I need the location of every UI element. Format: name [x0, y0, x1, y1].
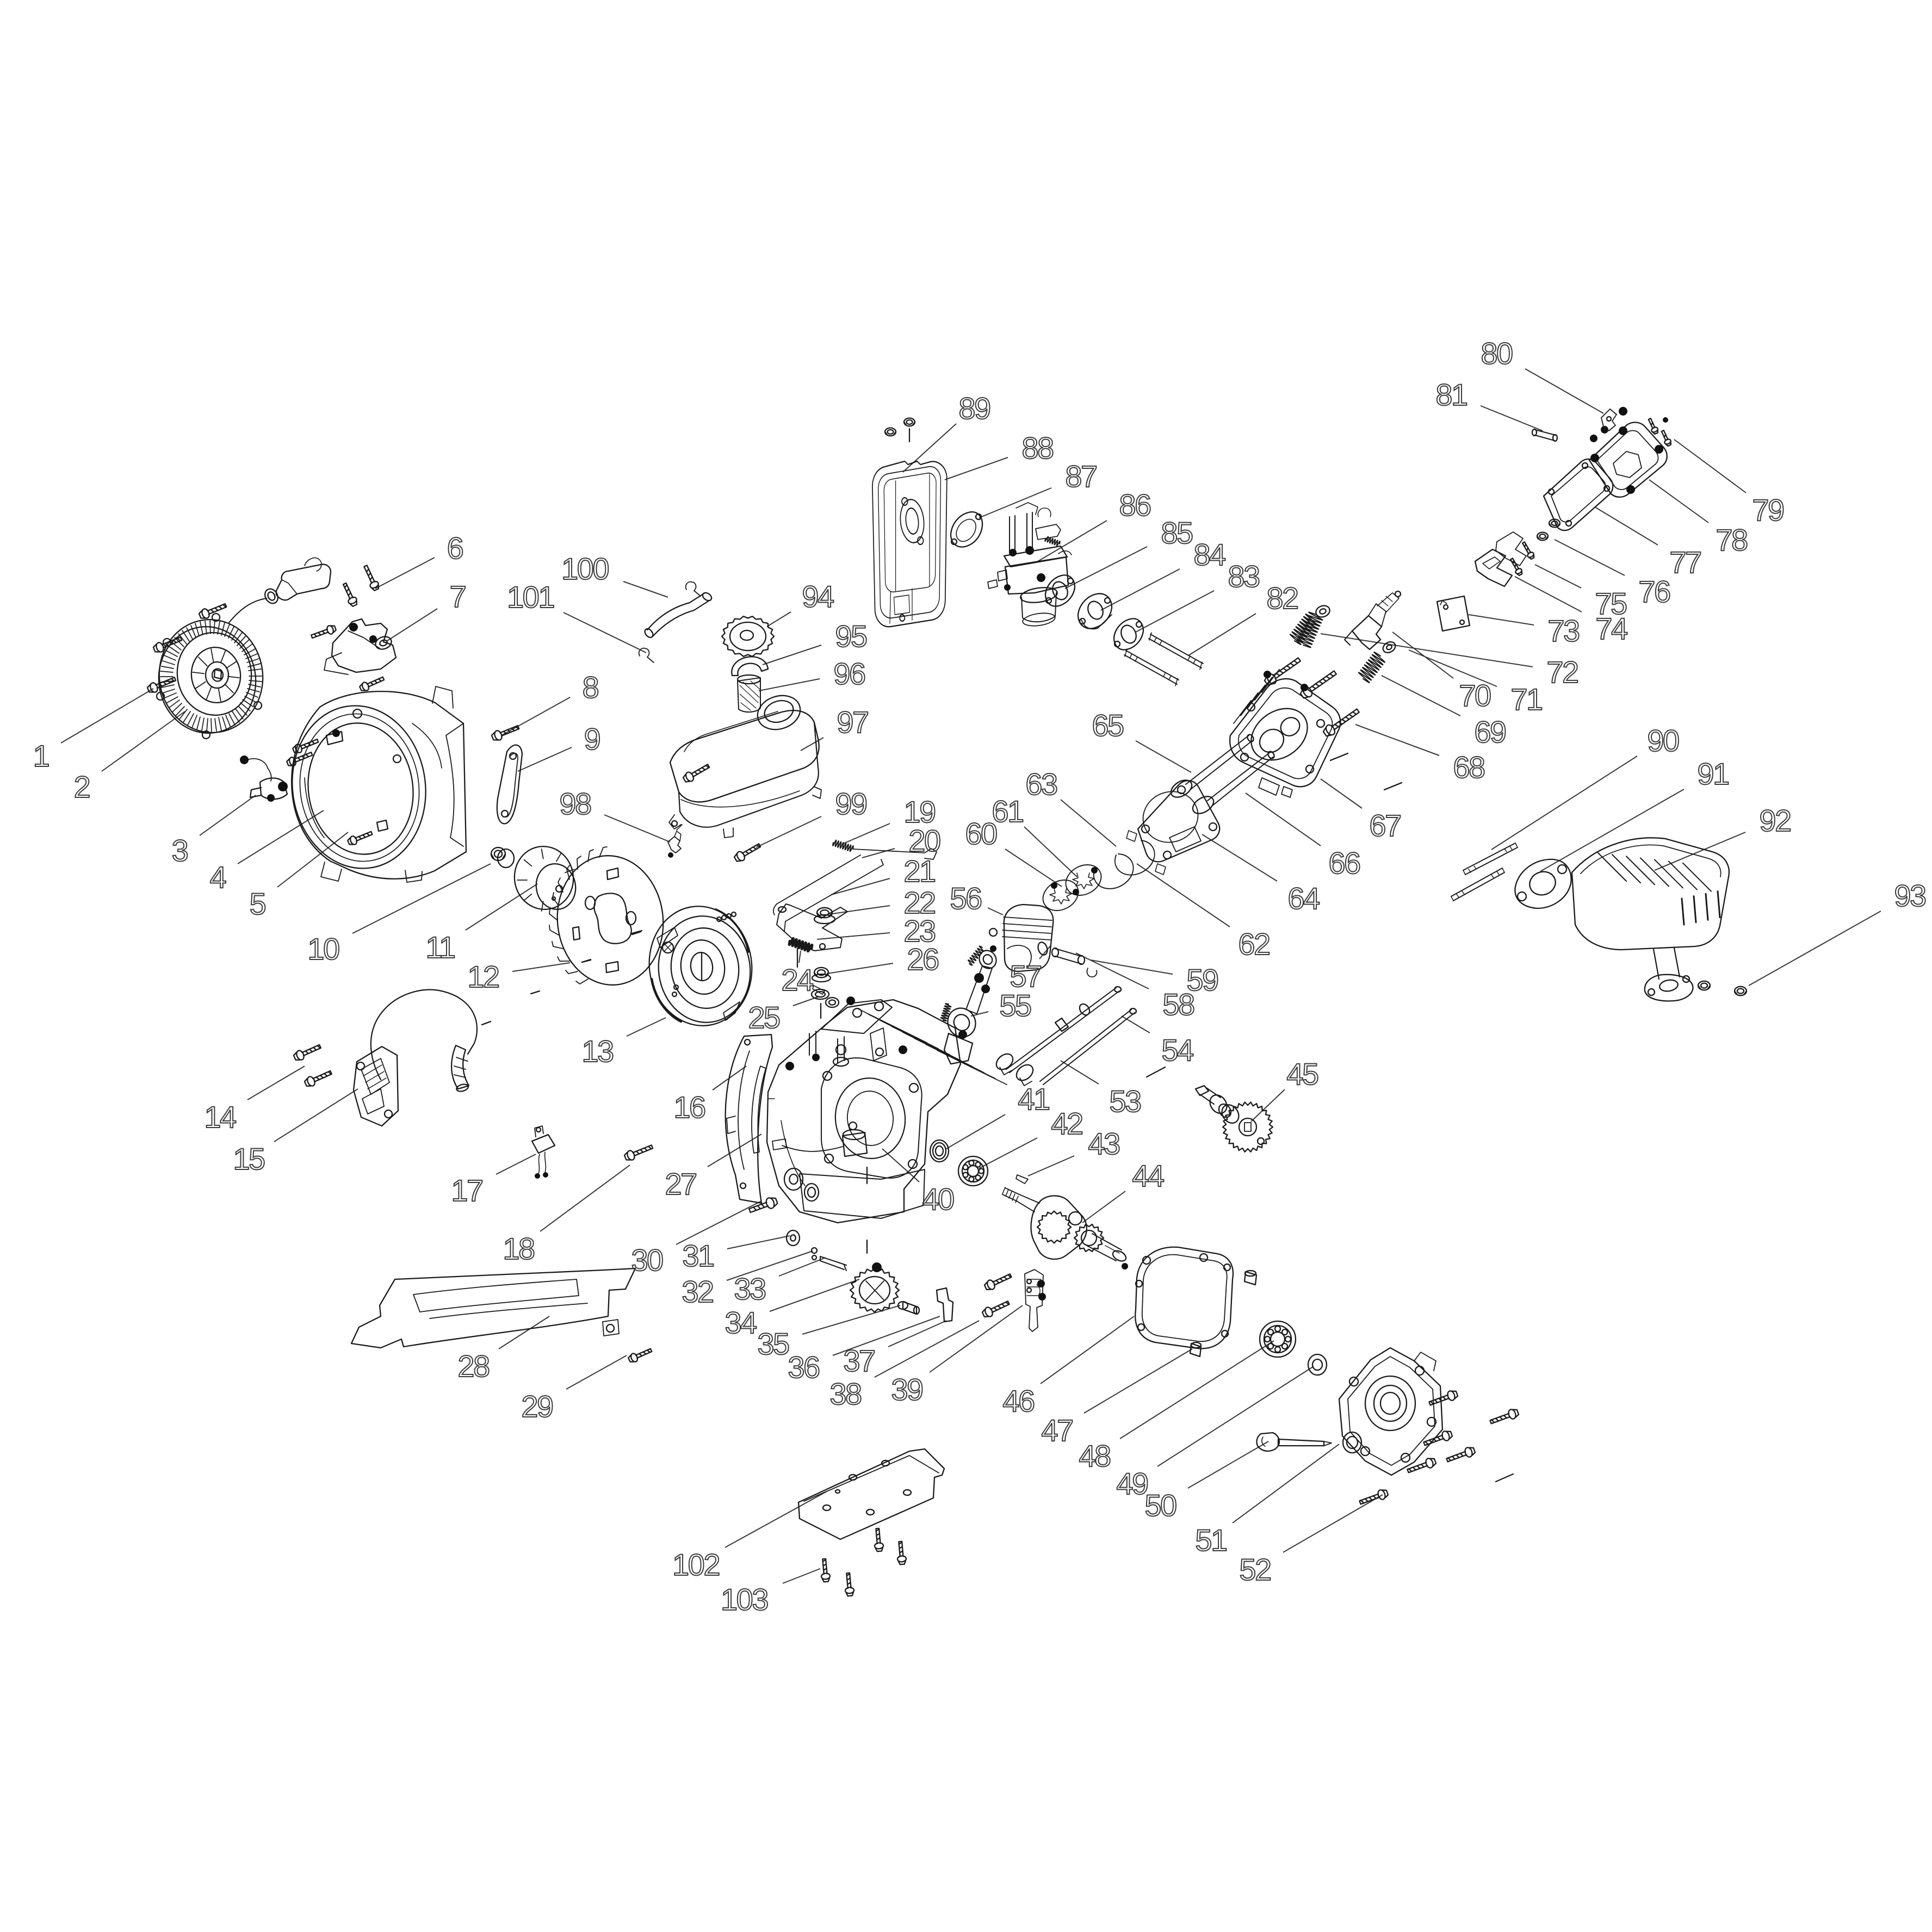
svg-text:55: 55	[999, 988, 1031, 1023]
svg-text:92: 92	[1759, 803, 1791, 838]
svg-text:10: 10	[307, 932, 339, 966]
svg-text:66: 66	[1328, 846, 1360, 880]
svg-text:54: 54	[1161, 1033, 1193, 1067]
svg-text:36: 36	[788, 1350, 819, 1384]
svg-text:93: 93	[1894, 878, 1925, 913]
svg-text:20: 20	[908, 823, 940, 858]
svg-text:57: 57	[1010, 959, 1041, 993]
svg-text:97: 97	[837, 705, 868, 739]
svg-text:29: 29	[521, 1389, 553, 1423]
svg-text:26: 26	[907, 942, 938, 976]
svg-text:17: 17	[451, 1173, 482, 1207]
svg-text:49: 49	[1116, 1466, 1148, 1501]
svg-text:79: 79	[1752, 493, 1784, 527]
svg-text:13: 13	[581, 1034, 613, 1068]
svg-text:14: 14	[204, 1100, 236, 1134]
svg-text:101: 101	[507, 580, 554, 614]
svg-text:95: 95	[835, 619, 866, 653]
svg-text:2: 2	[74, 770, 90, 804]
svg-text:75: 75	[1595, 586, 1626, 621]
svg-text:63: 63	[1025, 767, 1057, 801]
svg-text:85: 85	[1161, 516, 1192, 550]
svg-text:44: 44	[1132, 1159, 1164, 1193]
svg-text:77: 77	[1669, 545, 1701, 579]
svg-text:43: 43	[1088, 1126, 1119, 1161]
svg-text:39: 39	[891, 1372, 922, 1407]
svg-text:6: 6	[447, 531, 463, 565]
svg-text:5: 5	[250, 887, 265, 921]
svg-text:38: 38	[829, 1377, 861, 1411]
svg-text:48: 48	[1079, 1439, 1110, 1473]
svg-text:28: 28	[457, 1349, 489, 1383]
svg-text:25: 25	[748, 1000, 779, 1035]
svg-text:94: 94	[802, 579, 834, 614]
svg-text:35: 35	[757, 1327, 789, 1361]
svg-text:86: 86	[1119, 488, 1150, 522]
svg-text:7: 7	[450, 579, 466, 614]
svg-text:56: 56	[950, 881, 981, 915]
svg-text:8: 8	[583, 670, 598, 704]
svg-text:51: 51	[1195, 1523, 1227, 1557]
svg-text:32: 32	[682, 1274, 713, 1309]
svg-text:99: 99	[835, 787, 866, 821]
svg-text:102: 102	[672, 1547, 719, 1582]
svg-text:11: 11	[425, 930, 454, 964]
svg-text:18: 18	[503, 1231, 534, 1266]
svg-text:80: 80	[1481, 336, 1512, 370]
svg-text:83: 83	[1228, 559, 1259, 593]
svg-text:103: 103	[721, 1582, 767, 1617]
svg-text:70: 70	[1459, 678, 1490, 713]
svg-text:100: 100	[561, 552, 608, 586]
svg-text:34: 34	[725, 1305, 757, 1340]
svg-text:9: 9	[584, 722, 600, 756]
svg-text:15: 15	[233, 1142, 264, 1176]
svg-text:45: 45	[1286, 1057, 1318, 1091]
svg-text:37: 37	[843, 1343, 875, 1378]
svg-text:89: 89	[958, 391, 990, 425]
svg-text:53: 53	[1109, 1084, 1141, 1118]
svg-text:72: 72	[1546, 655, 1578, 689]
svg-text:30: 30	[631, 1243, 662, 1277]
svg-text:81: 81	[1435, 377, 1467, 412]
svg-text:76: 76	[1638, 574, 1670, 609]
svg-text:46: 46	[1002, 1384, 1034, 1418]
svg-text:65: 65	[1092, 708, 1123, 742]
svg-text:12: 12	[467, 959, 499, 994]
svg-text:4: 4	[210, 860, 226, 894]
svg-text:96: 96	[833, 657, 865, 691]
svg-text:98: 98	[559, 787, 591, 821]
svg-text:16: 16	[673, 1090, 705, 1124]
svg-text:21: 21	[903, 854, 935, 888]
svg-text:71: 71	[1510, 682, 1542, 716]
svg-text:27: 27	[665, 1167, 696, 1201]
svg-text:33: 33	[734, 1272, 765, 1306]
svg-text:91: 91	[1697, 757, 1729, 791]
svg-text:68: 68	[1453, 750, 1484, 784]
svg-text:73: 73	[1547, 614, 1579, 648]
svg-text:52: 52	[1239, 1552, 1271, 1587]
svg-text:84: 84	[1193, 537, 1225, 572]
svg-text:31: 31	[682, 1239, 714, 1273]
svg-text:78: 78	[1716, 523, 1747, 557]
svg-text:82: 82	[1266, 581, 1298, 615]
svg-text:64: 64	[1287, 881, 1320, 915]
svg-text:47: 47	[1041, 1413, 1073, 1447]
svg-text:50: 50	[1144, 1488, 1176, 1522]
svg-text:42: 42	[1051, 1106, 1082, 1141]
svg-text:90: 90	[1647, 723, 1679, 758]
svg-text:41: 41	[1018, 1082, 1049, 1116]
svg-text:88: 88	[1021, 431, 1053, 465]
svg-text:87: 87	[1065, 459, 1097, 493]
svg-text:24: 24	[781, 963, 813, 997]
svg-text:3: 3	[172, 833, 188, 868]
svg-text:69: 69	[1474, 715, 1506, 749]
svg-text:59: 59	[1186, 963, 1218, 997]
svg-text:62: 62	[1238, 927, 1270, 961]
svg-text:61: 61	[992, 794, 1023, 828]
svg-text:40: 40	[922, 1182, 953, 1216]
svg-text:1: 1	[33, 739, 49, 773]
svg-text:67: 67	[1369, 808, 1401, 843]
